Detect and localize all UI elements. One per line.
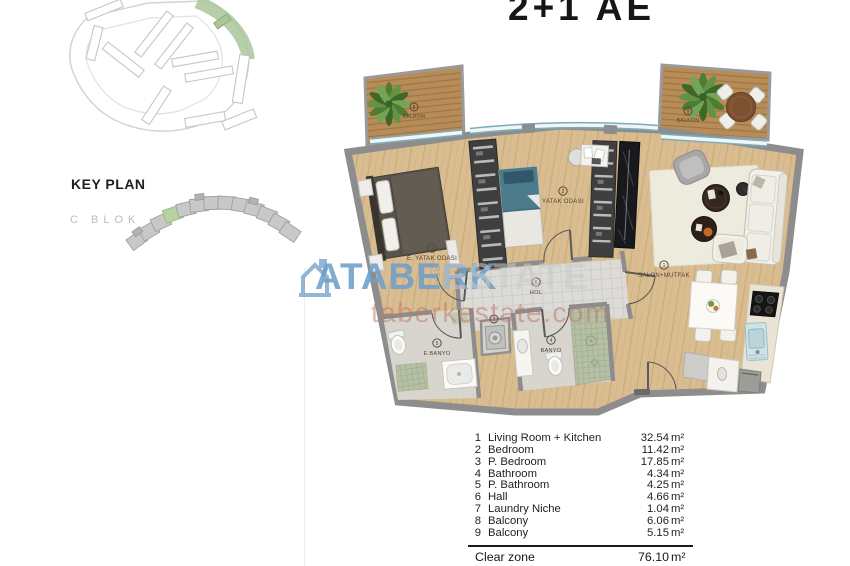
row-number: 8: [467, 516, 481, 528]
table-row: 3P. Bedroom17.85m²: [467, 457, 693, 469]
page-title: 2+1 AE: [508, 0, 655, 29]
floor-plan: 8 BALKON 9 BALKON 3 E. YATAK ODASI 2 YAT…: [348, 65, 800, 412]
table-row: 8Balcony6.06m²: [467, 516, 693, 528]
coffee-table: [703, 185, 730, 212]
svg-text:BALKON: BALKON: [403, 114, 426, 120]
row-unit: m²: [669, 528, 693, 540]
svg-text:E.BANYO: E.BANYO: [424, 351, 451, 357]
key-plan-block-label: C BLOK: [70, 214, 140, 226]
bed-double: [366, 165, 452, 261]
row-name: Balcony: [481, 516, 627, 528]
svg-text:2: 2: [562, 189, 565, 195]
svg-text:YATAK ODASI: YATAK ODASI: [542, 199, 584, 205]
row-area: 17.85: [627, 457, 669, 469]
cabinet-white: [707, 357, 739, 392]
table-row: 2Bedroom11.42m²: [467, 445, 693, 457]
watermark-url: taberkestate.com: [371, 297, 610, 329]
svg-text:BALKON: BALKON: [677, 118, 700, 124]
svg-text:1: 1: [663, 263, 666, 269]
kitchen-sink: [745, 323, 768, 361]
vanity: [513, 329, 533, 376]
svg-text:BANYO: BANYO: [540, 348, 561, 354]
bath-mat: [396, 363, 428, 392]
table-divider: [468, 545, 693, 547]
row-unit: m²: [669, 457, 693, 469]
key-plan-strip: [126, 193, 301, 250]
summary-unit: m²: [669, 550, 693, 564]
row-unit: m²: [669, 516, 693, 528]
site-plan: [70, 0, 257, 131]
svg-text:4: 4: [550, 338, 553, 344]
row-unit: m²: [669, 445, 693, 457]
area-table: 1Living Room + Kitchen32.54m² 2Bedroom11…: [467, 433, 693, 540]
svg-text:5: 5: [436, 341, 439, 347]
svg-text:9: 9: [687, 109, 690, 115]
row-area: 6.06: [627, 516, 669, 528]
appliance: [738, 369, 761, 393]
summary-area: 76.10: [627, 550, 669, 564]
bathtub: [442, 359, 477, 390]
row-number: 3: [467, 457, 481, 469]
row-area: 11.42: [627, 445, 669, 457]
row-name: Bedroom: [481, 445, 627, 457]
svg-text:3: 3: [431, 246, 434, 252]
page-fold-line: [304, 268, 305, 566]
key-plan-heading: KEY PLAN: [71, 176, 146, 192]
cooktop: [750, 291, 779, 317]
row-name: P. Bedroom: [481, 457, 627, 469]
row-area: 5.15: [627, 528, 669, 540]
summary-row: Clear zone 76.10 m²: [467, 550, 693, 564]
entrance-door: [634, 389, 650, 396]
bed-single: [499, 166, 544, 247]
page: 8 BALKON 9 BALKON 3 E. YATAK ODASI 2 YAT…: [0, 0, 850, 566]
svg-text:SALON+MUTFAK: SALON+MUTFAK: [638, 273, 690, 279]
summary-name: Clear zone: [467, 550, 627, 564]
watermark-vertical-text: REAL: [432, 266, 441, 291]
row-number: 2: [467, 445, 481, 457]
row-number: 9: [467, 528, 481, 540]
table-row: 9Balcony5.15m²: [467, 528, 693, 540]
watermark-brand-secondary: ESTATE: [442, 256, 588, 298]
coffee-table: [692, 217, 717, 242]
cabinet: [683, 352, 709, 381]
nightstand: [358, 179, 373, 197]
row-name: Balcony: [481, 528, 627, 540]
svg-text:8: 8: [413, 105, 416, 111]
